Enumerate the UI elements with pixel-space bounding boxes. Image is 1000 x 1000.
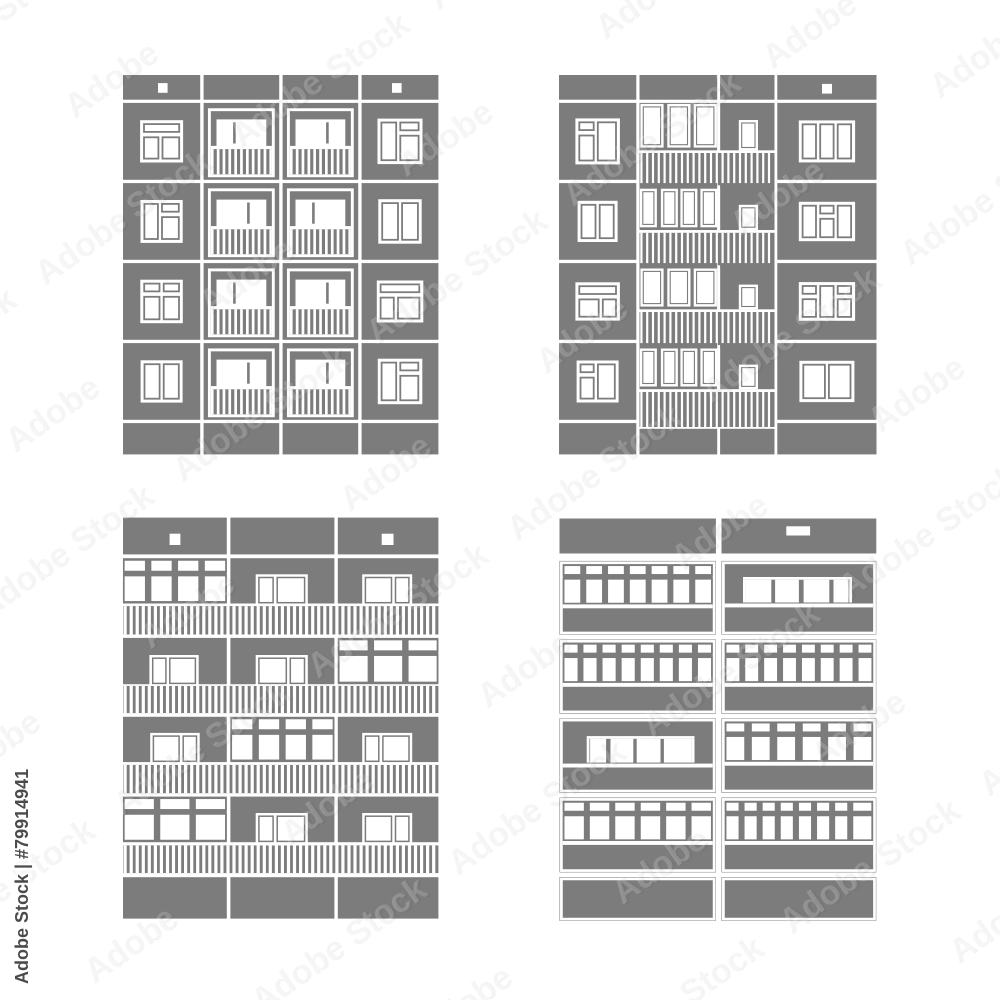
svg-text:Adobe Stock | #79914941: Adobe Stock | #79914941 <box>12 769 32 984</box>
